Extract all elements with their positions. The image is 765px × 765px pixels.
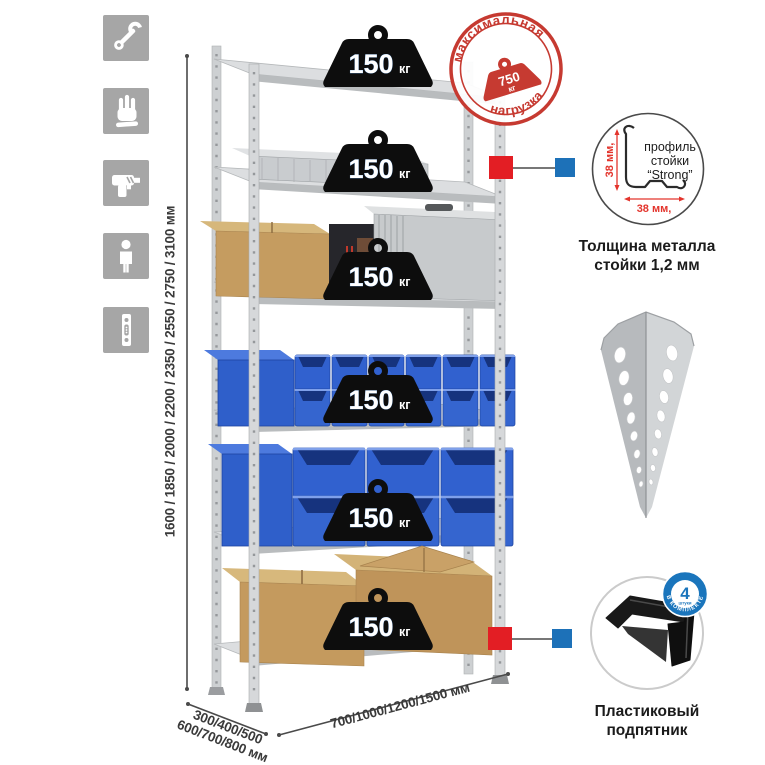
assembly-tile <box>103 15 149 61</box>
svg-text:кг: кг <box>399 62 410 76</box>
svg-text:кг: кг <box>399 516 410 530</box>
svg-text:150: 150 <box>348 612 393 642</box>
weight-badge-1: 150 кг <box>323 28 433 87</box>
svg-text:150: 150 <box>348 385 393 415</box>
foot-marker-red <box>488 627 512 650</box>
svg-text:кг: кг <box>399 625 410 639</box>
wrench-icon <box>103 15 149 61</box>
svg-text:150: 150 <box>348 262 393 292</box>
corner-post-image <box>601 312 694 518</box>
foot-marker-blue <box>552 629 572 648</box>
foot-caption: Пластиковый подпятник <box>567 702 727 740</box>
profile-caption: Толщина металла стойки 1,2 мм <box>567 237 727 275</box>
svg-text:“Strong”: “Strong” <box>647 168 692 182</box>
svg-text:150: 150 <box>348 503 393 533</box>
drill-tile <box>103 160 149 206</box>
drill-icon <box>103 160 149 206</box>
gloves-tile <box>103 88 149 134</box>
person-icon <box>103 233 149 279</box>
person-tile <box>103 233 149 279</box>
post-profile-detail: 38 мм, 38 мм, профиль стойки “Strong” <box>584 105 712 233</box>
post-profile-icon <box>103 307 149 353</box>
profile-marker-blue <box>555 158 575 177</box>
post-profile-tile <box>103 307 149 353</box>
svg-text:кг: кг <box>399 275 410 289</box>
gloves-icon <box>103 88 149 134</box>
svg-text:профиль: профиль <box>644 140 696 154</box>
svg-text:150: 150 <box>348 49 393 79</box>
profile-marker-red <box>489 156 513 179</box>
svg-text:38 мм,: 38 мм, <box>637 203 672 215</box>
svg-text:кг: кг <box>399 167 410 181</box>
svg-text:штуки: штуки <box>679 601 692 606</box>
svg-text:стойки: стойки <box>651 154 689 168</box>
svg-text:38 мм,: 38 мм, <box>604 143 616 178</box>
svg-text:150: 150 <box>348 154 393 184</box>
height-dimension-label: 1600 / 1850 / 2000 / 2200 / 2350 / 2550 … <box>163 92 178 652</box>
included-count-badge: 4 штуки в комплекте <box>663 572 708 617</box>
weight-badge-2: 150 кг <box>323 133 433 192</box>
svg-text:кг: кг <box>399 398 410 412</box>
product-diagram: 150 кг 150 кг 150 кг 150 кг <box>0 0 765 765</box>
plastic-foot-detail: 4 штуки в комплекте <box>584 566 716 698</box>
